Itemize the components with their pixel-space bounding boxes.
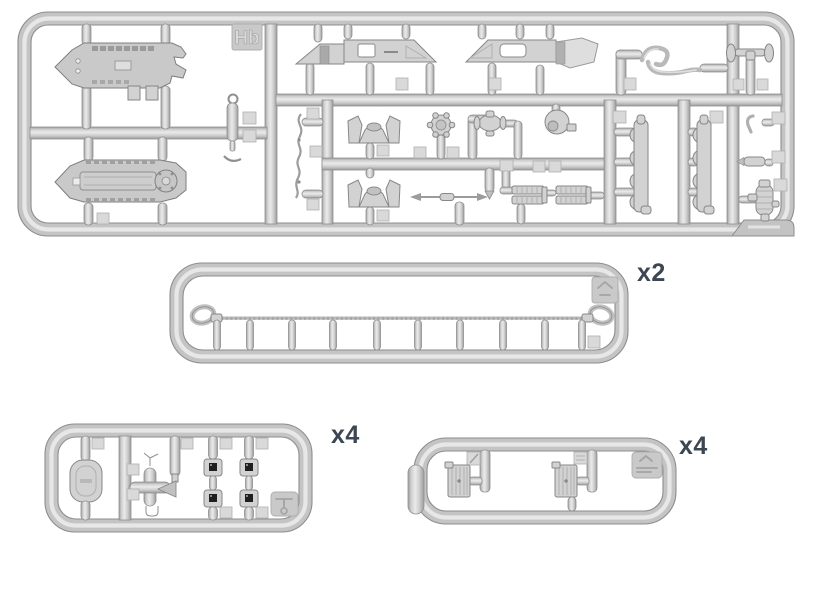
part-antenna [296, 114, 301, 198]
sprue-main: Hb [18, 12, 794, 236]
part-hatch-unit-1 [445, 450, 490, 497]
part-bracket-lower [348, 180, 400, 207]
part-small-cylinder [737, 157, 765, 166]
part-tow-cable [190, 305, 613, 326]
part-arrow-bracket [158, 436, 193, 497]
sprue-artwork: Hb [0, 0, 820, 615]
part-exhaust-manifold-2 [693, 115, 714, 214]
frame-corner-step [732, 220, 794, 236]
part-tow-hook [642, 48, 700, 74]
part-ribbed-block-1 [512, 186, 547, 204]
sprue-small-left [45, 424, 312, 532]
part-bracket-upper [348, 116, 400, 143]
mold-marking-tab: Hb [232, 24, 262, 50]
sprue-letter-marking: Hb [234, 28, 259, 49]
mold-logo-tab [632, 452, 662, 478]
quantity-label-small-right: x4 [679, 434, 708, 459]
part-cross-lever [127, 453, 170, 516]
sprue-small-right [408, 438, 676, 524]
cable-gates [214, 320, 601, 350]
mold-logo-tab [592, 277, 618, 303]
part-blower-housing [545, 110, 576, 134]
part-hull-tub [55, 160, 186, 202]
sprue-diagram: Hb [0, 0, 820, 615]
part-exhaust-manifold-1 [630, 115, 651, 214]
part-ribbed-block-2 [556, 186, 591, 204]
quantity-label-cable: x2 [637, 261, 666, 286]
part-fender-left [296, 40, 436, 64]
part-side-capsule [408, 465, 424, 514]
part-fender-right [466, 38, 598, 68]
part-twin-knob [727, 44, 774, 62]
part-tapered-pin [485, 168, 494, 199]
part-gear-wheel [427, 113, 455, 138]
part-arrow-rod [410, 193, 488, 201]
runner-divider [119, 436, 131, 520]
sprue-cable [170, 263, 628, 363]
mold-logo-tab [271, 492, 298, 516]
part-hatch-unit-2 [552, 450, 597, 511]
part-oval-hatch [70, 436, 104, 520]
part-periscopes [204, 436, 268, 520]
part-small-hook [748, 116, 753, 132]
quantity-label-small-left: x4 [331, 423, 360, 448]
